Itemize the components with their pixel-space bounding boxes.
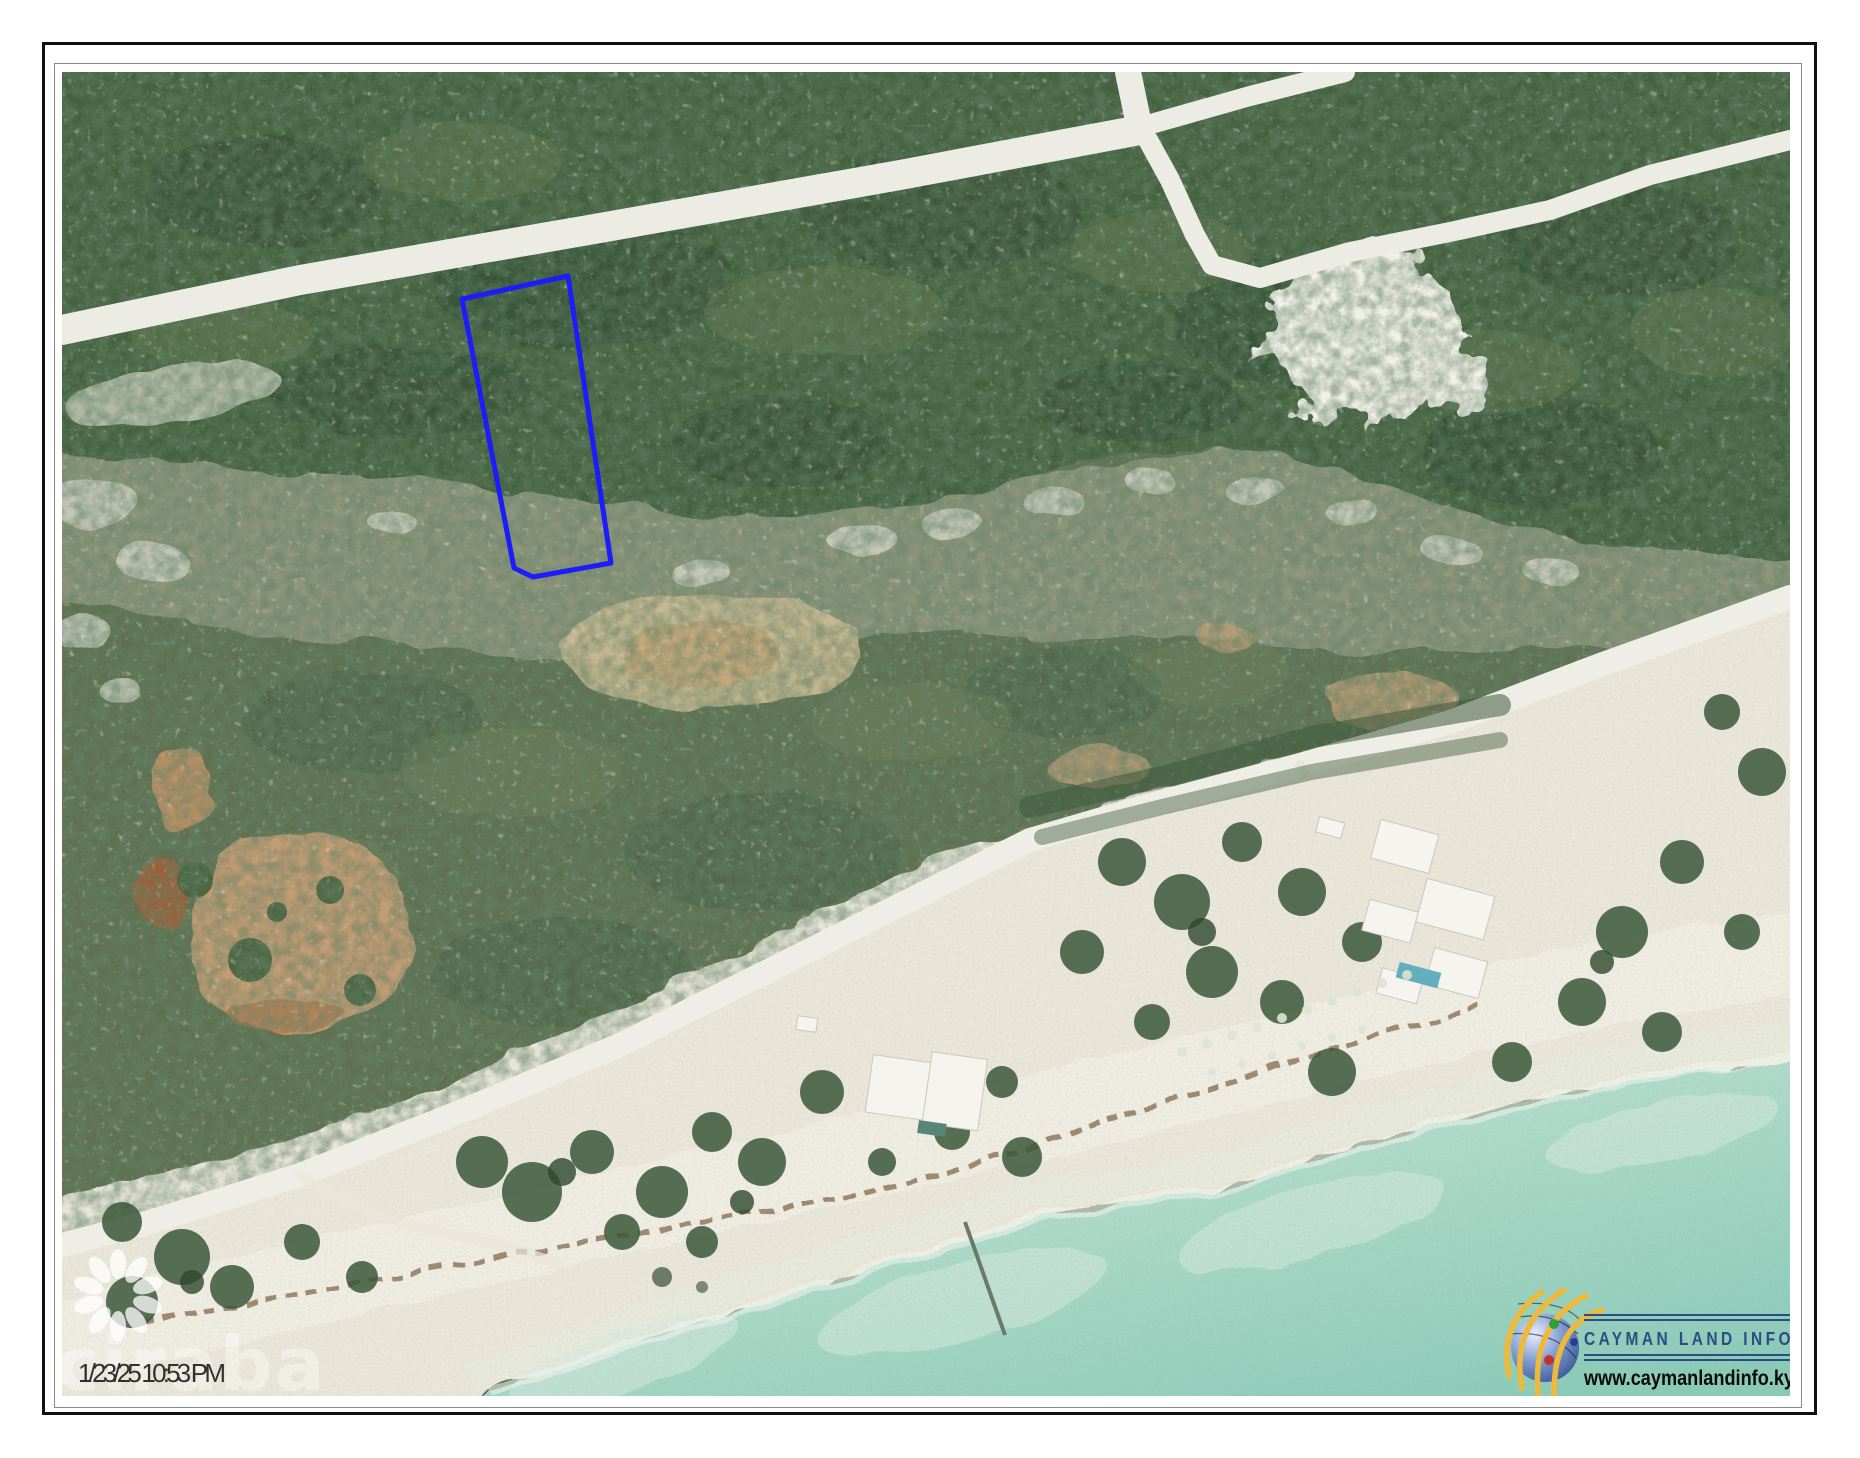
- logo-title: CAYMAN LAND INFO: [1584, 1329, 1790, 1349]
- shed-roof: [796, 1016, 818, 1033]
- aerial-map[interactable]: ciraba 1/23/25 10:53 PM: [62, 72, 1790, 1396]
- beach-house-roof: [922, 1052, 987, 1131]
- printed-map-page: ciraba 1/23/25 10:53 PM: [0, 0, 1860, 1458]
- logo-url: www.caymanlandinfo.ky: [1583, 1367, 1790, 1390]
- timestamp: 1/23/25 10:53 PM: [78, 1358, 226, 1388]
